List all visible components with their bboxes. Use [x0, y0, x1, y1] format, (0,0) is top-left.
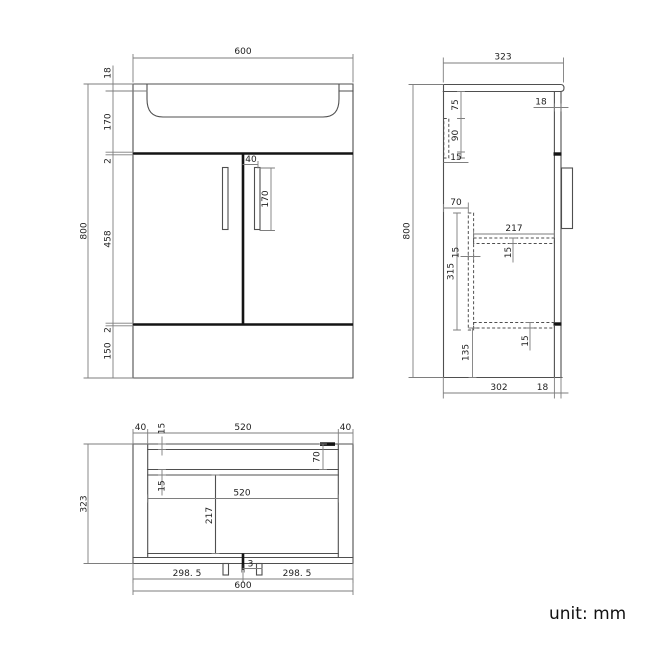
dim-label-handle-length: 170	[261, 190, 271, 207]
dim-label-divider-thickness: 15	[452, 247, 462, 258]
side-door-seam-top	[554, 152, 562, 155]
dim-label-backboard-height: 90	[451, 130, 461, 142]
dim-label-side-depth: 323	[494, 53, 511, 63]
dim-label-shelf-thickness: 15	[504, 247, 514, 258]
dim-label-backboard-width: 15	[450, 153, 461, 163]
plan-side-panels	[148, 444, 339, 558]
dim-label-plan-side-panel-right: 40	[340, 423, 352, 433]
side-shelf-hidden	[474, 238, 555, 244]
dim-label-plan-interior-width-top: 520	[234, 423, 251, 433]
front-right-handle	[255, 168, 261, 230]
dim-label-plinth-height: 150	[104, 342, 114, 359]
dim-label-plan-overall-width: 600	[234, 581, 251, 591]
dim-label-side-door-thickness: 18	[535, 98, 547, 108]
dim-label-plan-interior-width-mid: 520	[233, 489, 250, 499]
dim-front-width	[133, 55, 353, 83]
plan-view: 40 15 520 40 323 70 15 520 217 3 298. 5 …	[80, 423, 354, 595]
dim-label-shelf-depth: 217	[505, 224, 522, 234]
front-left-handle	[223, 168, 229, 230]
side-handle	[562, 168, 573, 229]
dim-plan-back-rail-thickness	[159, 437, 166, 455]
dim-label-carcass-depth: 302	[490, 383, 507, 393]
side-backboard-hidden	[444, 119, 449, 159]
side-countertop	[443, 85, 564, 92]
dim-label-gap-top: 2	[104, 158, 114, 164]
dim-label-plan-rail-thickness: 15	[158, 480, 168, 491]
side-bottom-shelf-hidden	[474, 323, 555, 329]
dim-side-height	[409, 85, 443, 378]
dim-label-handle-offset: 40	[245, 155, 257, 165]
vanity-unit-drawing: 600 800 18 170 2 458 2 150 40 170	[0, 0, 650, 650]
dim-label-plan-left-door: 298. 5	[173, 569, 202, 579]
dim-label-plan-back-offset: 70	[313, 451, 323, 463]
dim-label-gap-bottom: 2	[104, 327, 114, 333]
front-basin-profile	[147, 91, 339, 117]
dim-label-plan-side-panel-left: 40	[135, 423, 147, 433]
dim-label-plan-back-rail-thickness: 15	[158, 423, 168, 434]
dim-label-front-height: 800	[80, 222, 90, 239]
dim-label-plan-depth: 323	[80, 495, 90, 512]
dim-label-front-thickness: 18	[537, 383, 549, 393]
side-divider-hidden	[468, 213, 473, 330]
plan-mid-rail	[148, 470, 339, 476]
dim-label-basin-height: 170	[104, 113, 114, 130]
dim-side-divider-thickness	[461, 253, 480, 260]
front-basin-rim	[133, 84, 353, 91]
dim-label-bottom-clearance: 135	[462, 344, 472, 361]
unit-note: unit: mm	[549, 604, 626, 624]
dim-label-side-height: 800	[403, 222, 413, 239]
dim-label-plan-right-door: 298. 5	[283, 569, 312, 579]
front-view: 600 800 18 170 2 458 2 150 40 170	[80, 47, 354, 378]
dim-label-front-width: 600	[234, 47, 251, 57]
dim-label-bottom-shelf-thickness: 15	[521, 335, 531, 346]
dim-label-divider-offset: 70	[450, 198, 462, 208]
dim-label-plan-shelf-depth: 217	[205, 507, 215, 524]
dim-plan-depth	[84, 444, 133, 564]
plan-right-handle	[257, 564, 263, 576]
dim-label-door-height: 458	[104, 230, 114, 247]
plan-left-handle	[223, 564, 229, 576]
technical-drawing-page: 600 800 18 170 2 458 2 150 40 170	[0, 0, 650, 650]
dim-label-plan-door-gap: 3	[248, 560, 254, 570]
dim-label-divider-height: 315	[447, 263, 457, 280]
dim-label-counter-thickness: 18	[104, 67, 114, 79]
side-view: 323 800 18 75 90 15 70 315 15 217 15 15 …	[403, 53, 573, 399]
dim-label-backboard-top-offset: 75	[451, 99, 461, 110]
